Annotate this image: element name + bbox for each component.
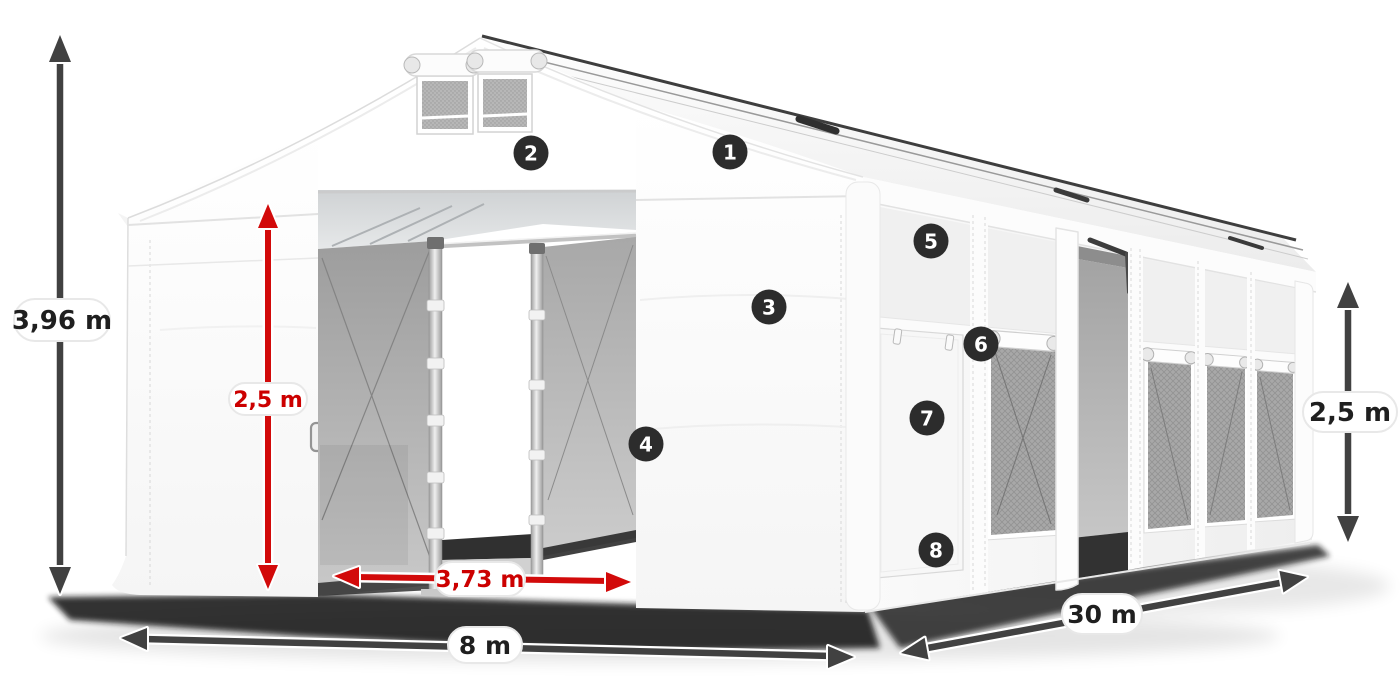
badge-number: 8 (929, 539, 943, 563)
gate-height-value: 2,5 m (233, 388, 303, 413)
vent-mesh (422, 81, 468, 129)
arrow-head-down (49, 567, 71, 594)
folded-gate-edge (1056, 228, 1078, 590)
dimension-label-gate-height: 2,5 m (229, 383, 307, 415)
badge-number: 3 (762, 296, 776, 320)
pole-top-joint (529, 243, 545, 254)
front-corner-cover (846, 182, 880, 610)
dimension-label-total-height: 3,96 m (12, 299, 112, 341)
pole-cover-strip (1128, 243, 1143, 570)
pole-cover-strip (1195, 257, 1205, 559)
pole-clip (529, 310, 545, 320)
header-shadow (318, 191, 636, 192)
interior-right-panel (543, 237, 636, 556)
side-window-4 (1251, 359, 1298, 522)
gate-width-value: 3,73 m (436, 567, 525, 593)
dimension-label-side-height: 2,5 m (1303, 392, 1397, 432)
badge-number: 7 (920, 407, 934, 431)
badge-number: 2 (524, 142, 538, 166)
pole-clip (529, 515, 545, 525)
callout-badge-5: 5 (914, 224, 949, 259)
far-opening-shadow (442, 534, 533, 560)
open-side-gate-gap (1056, 228, 1129, 590)
length-value: 30 m (1067, 600, 1137, 629)
pole-clip (427, 415, 444, 426)
dimension-label-gate-width: 3,73 m (435, 562, 525, 596)
callout-badge-8: 8 (919, 533, 954, 568)
vent-bar (483, 114, 527, 116)
arrow-head-right (606, 572, 631, 592)
pole-clip (427, 528, 444, 539)
callout-badge-6: 6 (964, 327, 999, 362)
pole-clip (529, 380, 545, 390)
callout-badge-3: 3 (752, 290, 787, 325)
callout-badge-4: 4 (629, 427, 664, 462)
front-wall-left-jamb (112, 130, 318, 597)
arrow-head-up (49, 35, 71, 62)
dimension-label-front-width: 8 m (448, 627, 522, 663)
vent-roller-cap (467, 53, 483, 69)
arrow-head-down (1337, 516, 1359, 542)
pole-top-joint (427, 237, 444, 249)
vent-roller-cap (531, 53, 547, 69)
badge-number: 5 (924, 230, 938, 254)
side-height-value: 2,5 m (1309, 398, 1391, 428)
pole-clip (427, 472, 444, 483)
front-wall-right-jamb (636, 104, 863, 612)
front-gate-interior (318, 190, 636, 596)
front-width-value: 8 m (459, 631, 511, 660)
diagram-canvas: 3,96 m 2,5 m 3,73 m 8 m 30 m 2,5 m 1 (0, 0, 1400, 700)
pole-clip (427, 300, 444, 311)
door-strap-2 (945, 335, 954, 351)
side-window-2 (1140, 347, 1197, 533)
badge-number: 6 (974, 333, 988, 357)
vent-roller-cap (404, 57, 420, 73)
total-height-value: 3,96 m (12, 306, 112, 336)
gap-interior-wall (1072, 258, 1128, 538)
callout-badge-1: 1 (713, 135, 748, 170)
pole (531, 249, 543, 579)
vent-mesh (483, 79, 527, 127)
pole-clip (529, 450, 545, 460)
pole-clip (427, 358, 444, 369)
badge-number: 4 (639, 433, 653, 457)
interior-ceiling (318, 190, 636, 249)
panel-patch (320, 445, 408, 565)
tent-product-diagram: 3,96 m 2,5 m 3,73 m 8 m 30 m 2,5 m 1 (0, 0, 1400, 700)
callout-badge-7: 7 (910, 401, 945, 436)
side-window-1 (983, 330, 1062, 540)
vent-bar (422, 116, 468, 118)
door-strap-1 (893, 329, 902, 345)
eave-tip (118, 213, 128, 227)
dimension-label-length: 30 m (1062, 594, 1142, 634)
arrow-head-up (1337, 282, 1359, 308)
callout-badge-2: 2 (514, 136, 549, 171)
badge-number: 1 (723, 141, 737, 165)
side-window-3 (1201, 353, 1251, 527)
